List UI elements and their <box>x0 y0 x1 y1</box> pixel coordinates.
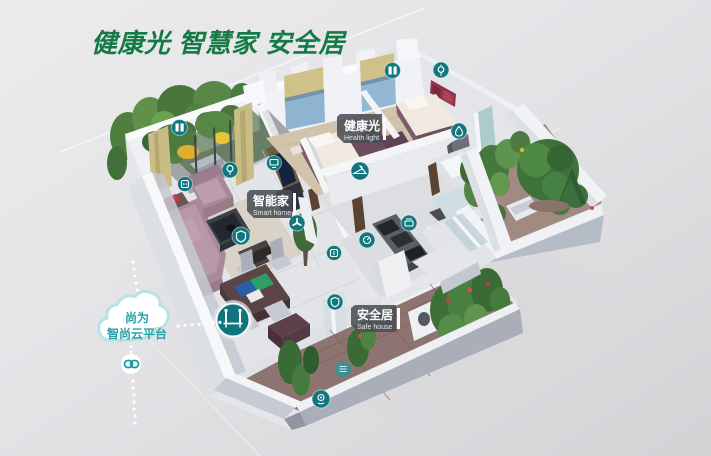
svg-text:智尚云平台: 智尚云平台 <box>106 326 167 341</box>
svg-text:尚为: 尚为 <box>125 310 149 325</box>
svg-text:智能家: 智能家 <box>252 193 290 208</box>
svg-text:Health light: Health light <box>344 135 379 142</box>
svg-text:健康光: 健康光 <box>344 118 380 133</box>
svg-text:安全居: 安全居 <box>357 307 393 322</box>
svg-text:Smart home: Smart home <box>253 210 291 217</box>
svg-text:健康光 智慧家 安全居: 健康光 智慧家 安全居 <box>91 28 347 58</box>
svg-text:Safe house: Safe house <box>357 324 393 331</box>
